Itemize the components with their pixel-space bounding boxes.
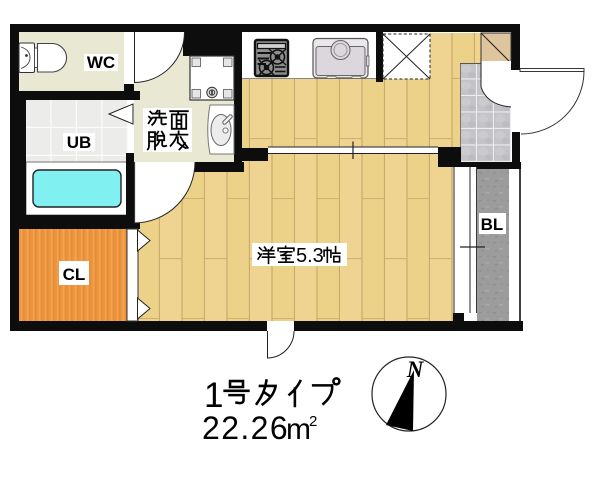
svg-text:N: N bbox=[406, 357, 425, 382]
svg-text:m: m bbox=[286, 413, 311, 446]
svg-text:BL: BL bbox=[481, 215, 504, 234]
svg-text:5.3: 5.3 bbox=[296, 245, 324, 267]
svg-text:22.26: 22.26 bbox=[202, 410, 289, 446]
svg-text:2: 2 bbox=[309, 413, 317, 430]
svg-text:CL: CL bbox=[63, 265, 86, 284]
svg-text:UB: UB bbox=[67, 133, 92, 152]
svg-text:WC: WC bbox=[87, 53, 115, 72]
